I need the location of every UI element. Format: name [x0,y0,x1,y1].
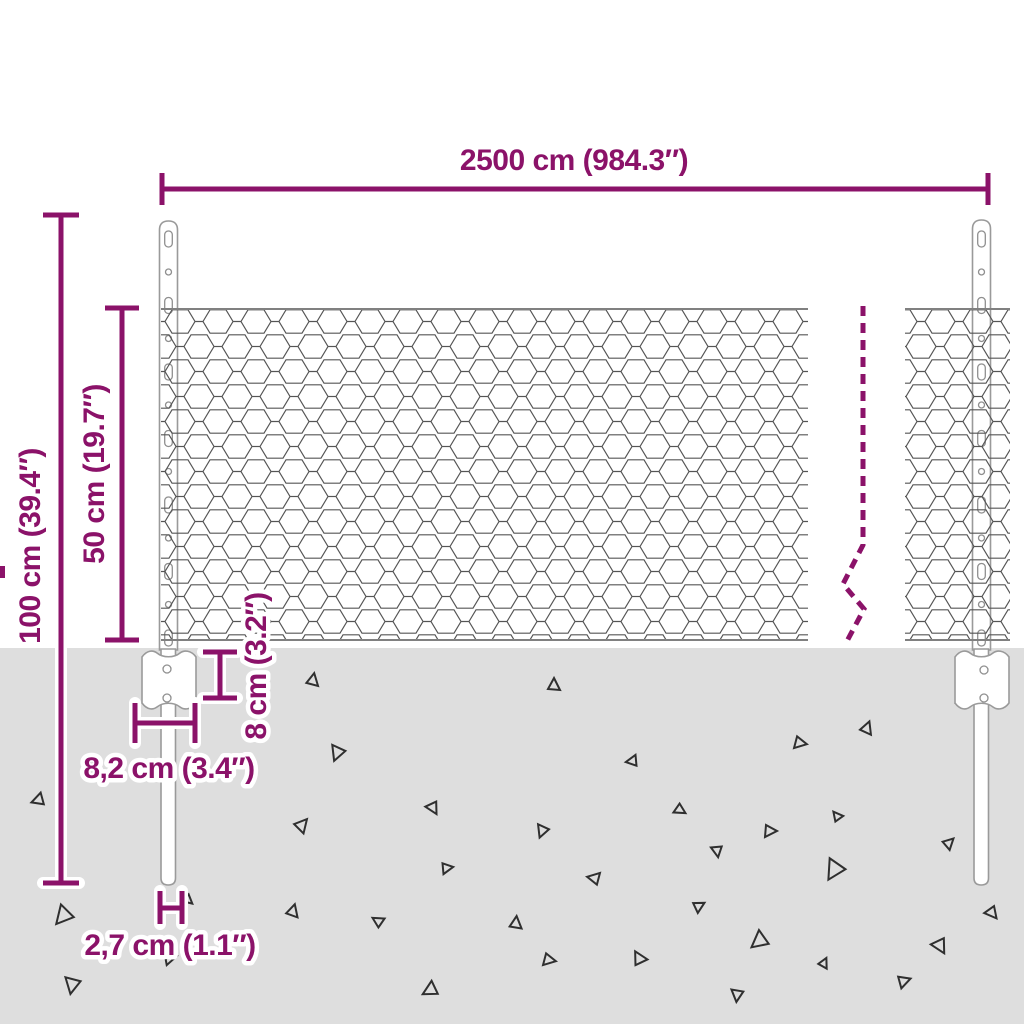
dim-post-width-label: 2,7 cm (1.1″) [84,929,255,962]
post-hole [166,269,172,275]
dim-total-width-label: 2500 cm (984.3″) [460,144,688,177]
post-hole [979,269,985,275]
post-slot [165,231,173,247]
left-post-anchor-bracket [142,651,196,709]
mesh-panel-left [161,309,808,640]
dim-total-height-label: 100 cm (39.4″) [14,448,47,644]
mesh-panel-right [905,309,1010,640]
right-post-anchor-bracket [955,651,1009,709]
fence-dimension-diagram: 2500 cm (984.3″) 100 cm (39.4″) 50 cm (1… [0,0,1024,1024]
stray-accent-mark [0,566,5,578]
diagram-canvas: 2500 cm (984.3″) 100 cm (39.4″) 50 cm (1… [0,0,1024,1024]
dim-bracket-width-label: 8,2 cm (3.4″) [83,752,254,785]
post-slot [978,231,986,247]
dim-anchor-depth-label: 8 cm (3.2″) [240,592,273,739]
dim-mesh-height-label: 50 cm (19.7″) [78,384,111,564]
break-line [843,306,864,643]
dim-total-width-line [162,173,988,205]
